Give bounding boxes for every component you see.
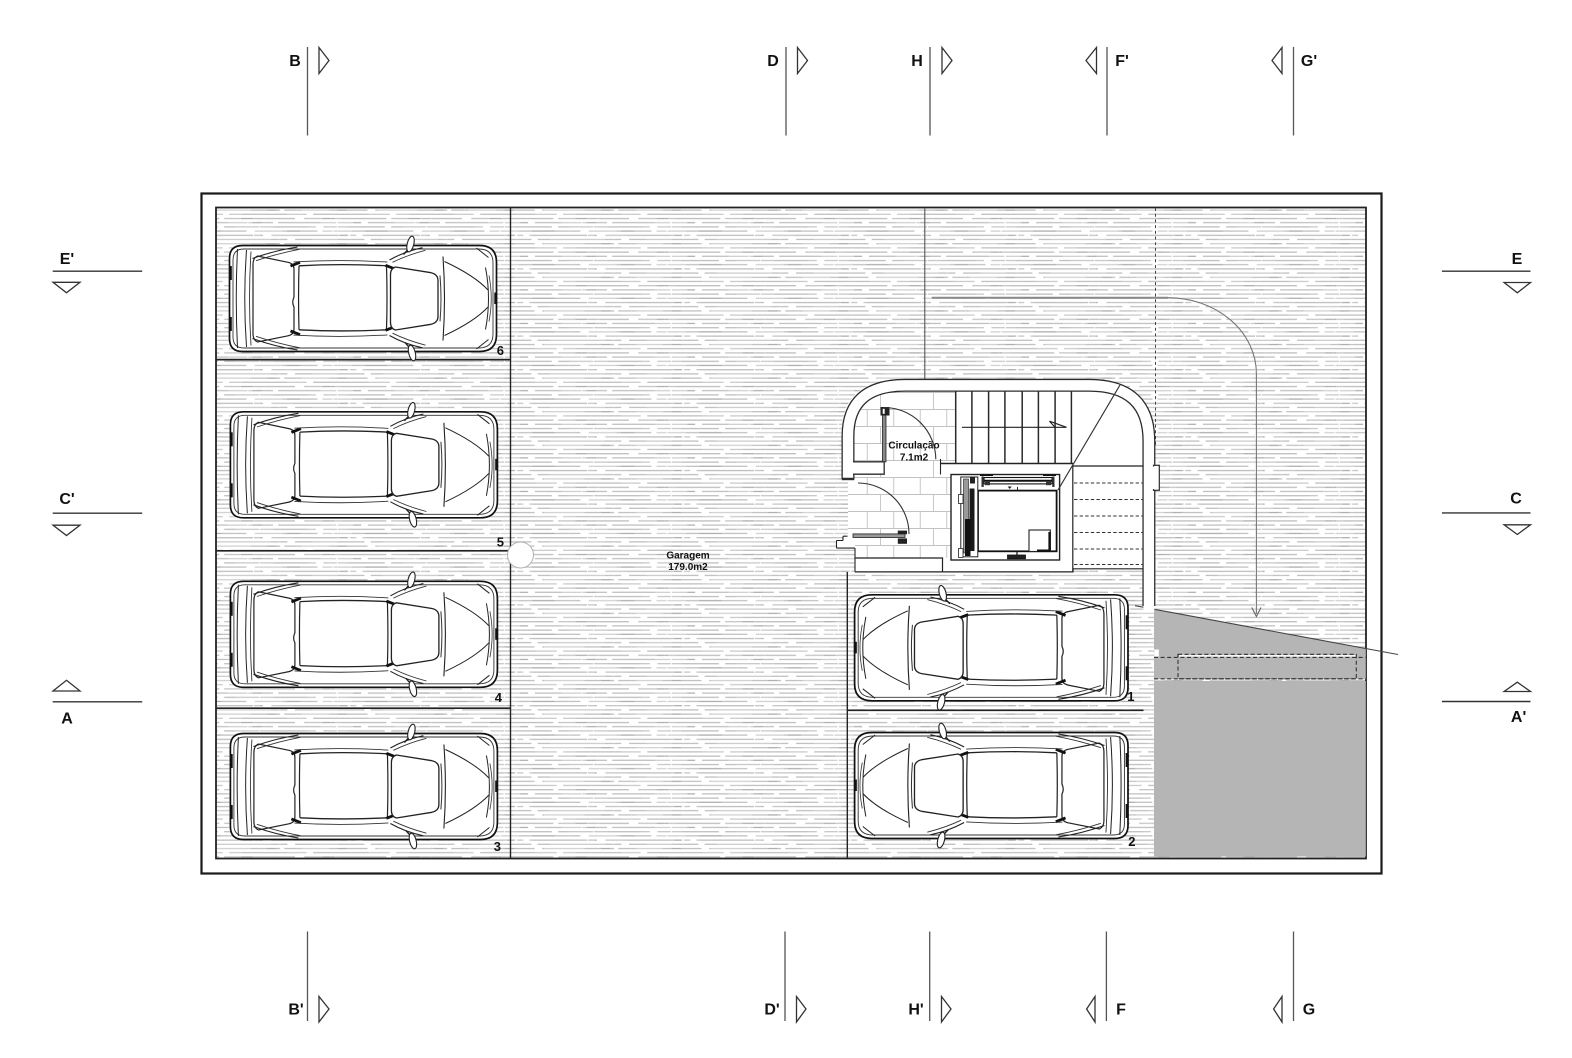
svg-text:2: 2 [1128,834,1135,849]
svg-text:Garagem: Garagem [666,551,709,562]
svg-text:F': F' [1115,53,1129,70]
svg-text:7.1m2: 7.1m2 [900,453,929,464]
svg-text:1: 1 [1127,689,1134,704]
svg-text:6: 6 [497,343,504,358]
svg-text:3: 3 [494,839,501,854]
svg-text:G': G' [1301,53,1317,70]
svg-text:C: C [1510,491,1522,508]
svg-text:D: D [767,53,779,70]
svg-text:C': C' [59,491,74,508]
svg-text:F: F [1116,1002,1126,1019]
svg-text:179.0m2: 179.0m2 [668,562,708,573]
svg-text:A: A [61,711,73,728]
svg-text:G: G [1303,1002,1315,1019]
svg-text:E': E' [60,251,74,268]
svg-text:Circulação: Circulação [888,441,939,452]
svg-text:E: E [1512,251,1523,268]
svg-text:B: B [289,53,301,70]
svg-text:A': A' [1511,709,1526,726]
svg-text:H': H' [908,1002,923,1019]
svg-text:H: H [911,53,923,70]
svg-text:5: 5 [497,535,504,550]
svg-text:D': D' [764,1002,779,1019]
svg-text:B': B' [288,1002,303,1019]
svg-text:4: 4 [495,690,503,705]
